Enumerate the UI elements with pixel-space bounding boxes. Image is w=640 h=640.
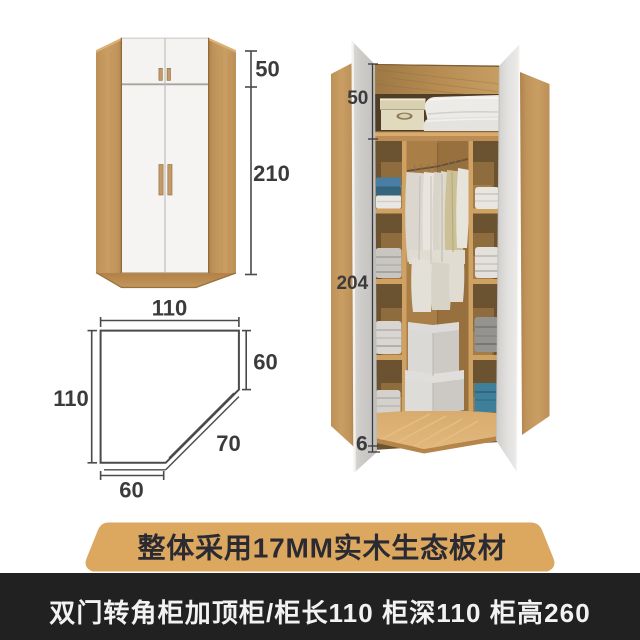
svg-text:70: 70 bbox=[216, 431, 240, 456]
svg-text:6: 6 bbox=[356, 433, 368, 456]
svg-text:210: 210 bbox=[253, 161, 290, 186]
svg-text:整体采用17MM实木生态板材: 整体采用17MM实木生态板材 bbox=[138, 532, 507, 564]
svg-text:60: 60 bbox=[119, 478, 143, 503]
svg-text:50: 50 bbox=[255, 57, 279, 82]
svg-text:204: 204 bbox=[336, 273, 368, 294]
svg-text:50: 50 bbox=[347, 88, 368, 109]
svg-text:110: 110 bbox=[53, 386, 89, 411]
svg-text:双门转角柜加顶柜/柜长110 柜深110 柜高260: 双门转角柜加顶柜/柜长110 柜深110 柜高260 bbox=[49, 598, 591, 628]
svg-text:110: 110 bbox=[152, 296, 188, 321]
svg-text:60: 60 bbox=[253, 350, 277, 375]
